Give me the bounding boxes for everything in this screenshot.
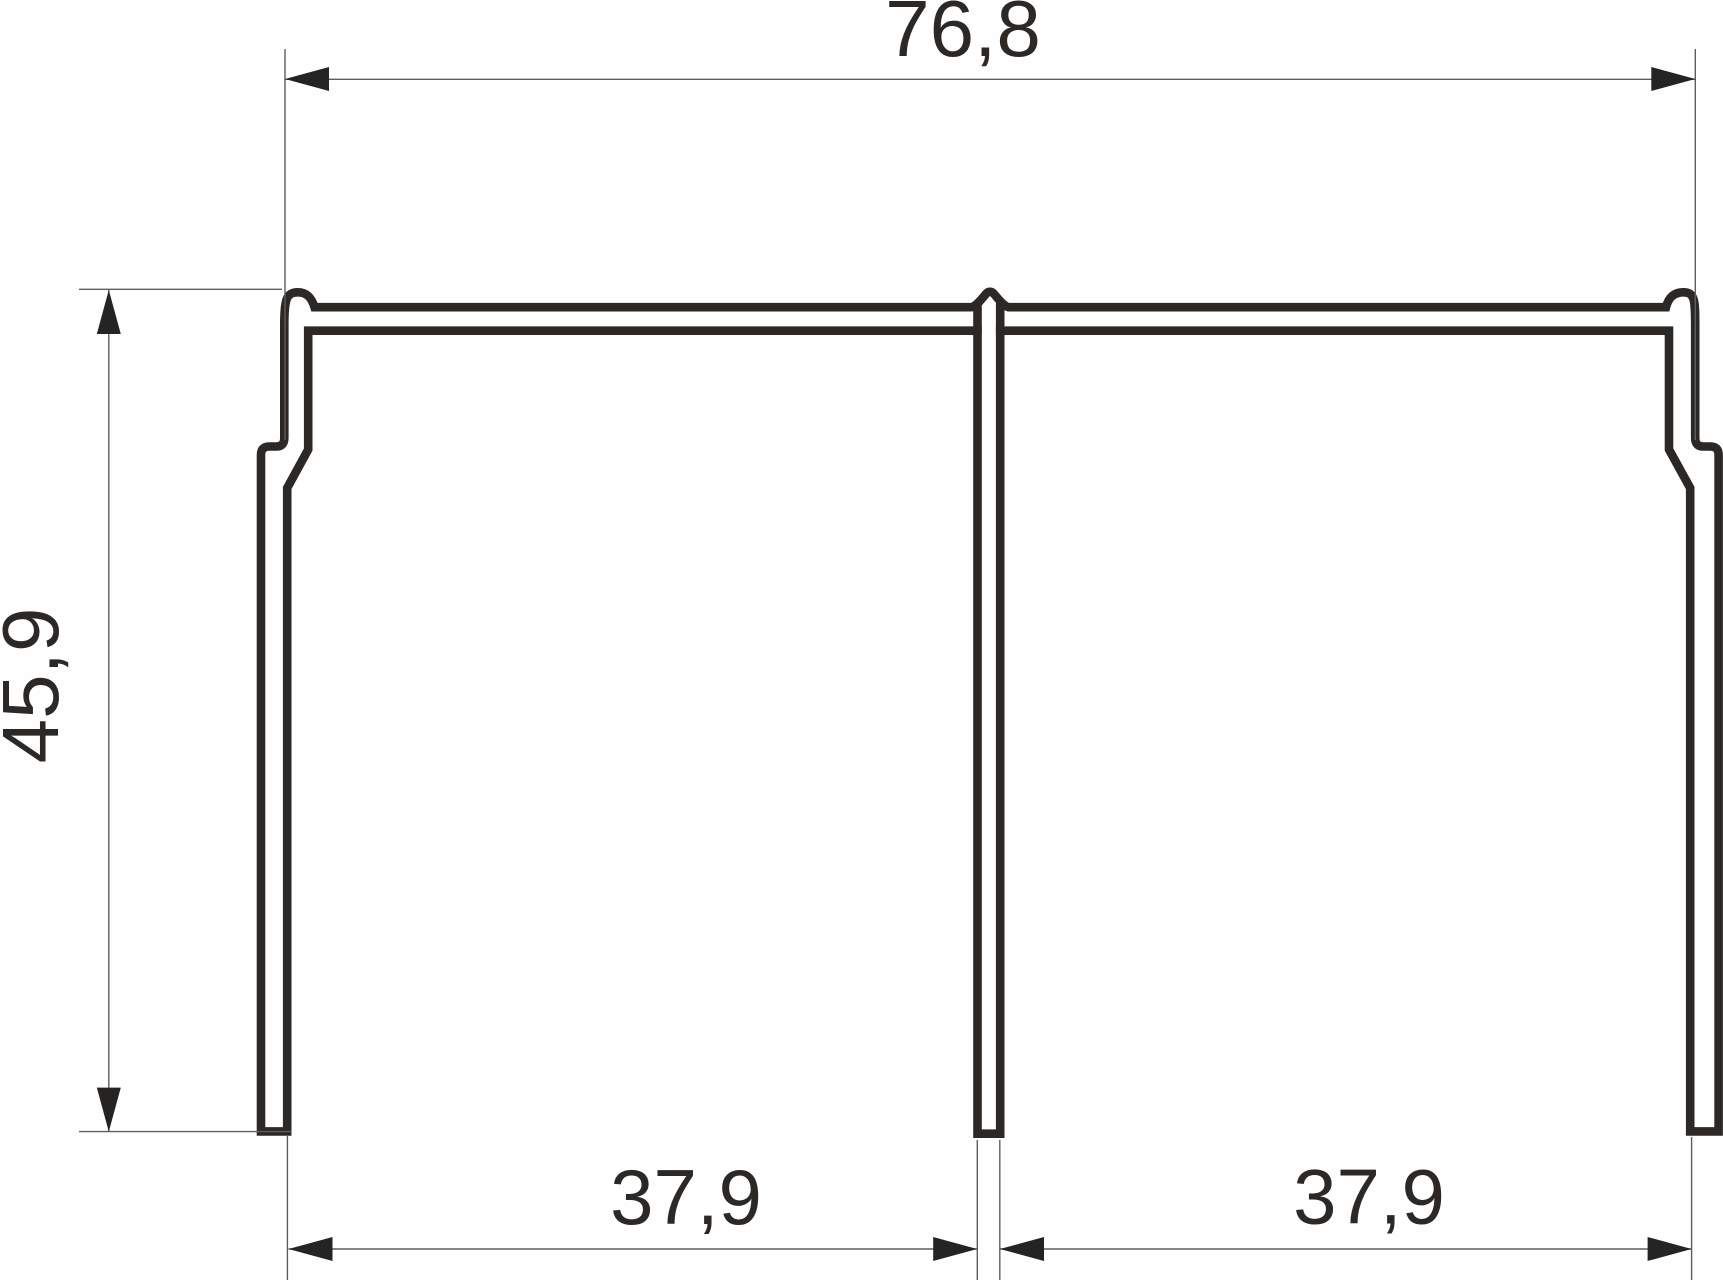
svg-text:37,9: 37,9 bbox=[1293, 1153, 1445, 1241]
svg-text:37,9: 37,9 bbox=[610, 1153, 762, 1241]
svg-text:45,9: 45,9 bbox=[0, 608, 75, 764]
svg-text:76,8: 76,8 bbox=[885, 0, 1041, 73]
